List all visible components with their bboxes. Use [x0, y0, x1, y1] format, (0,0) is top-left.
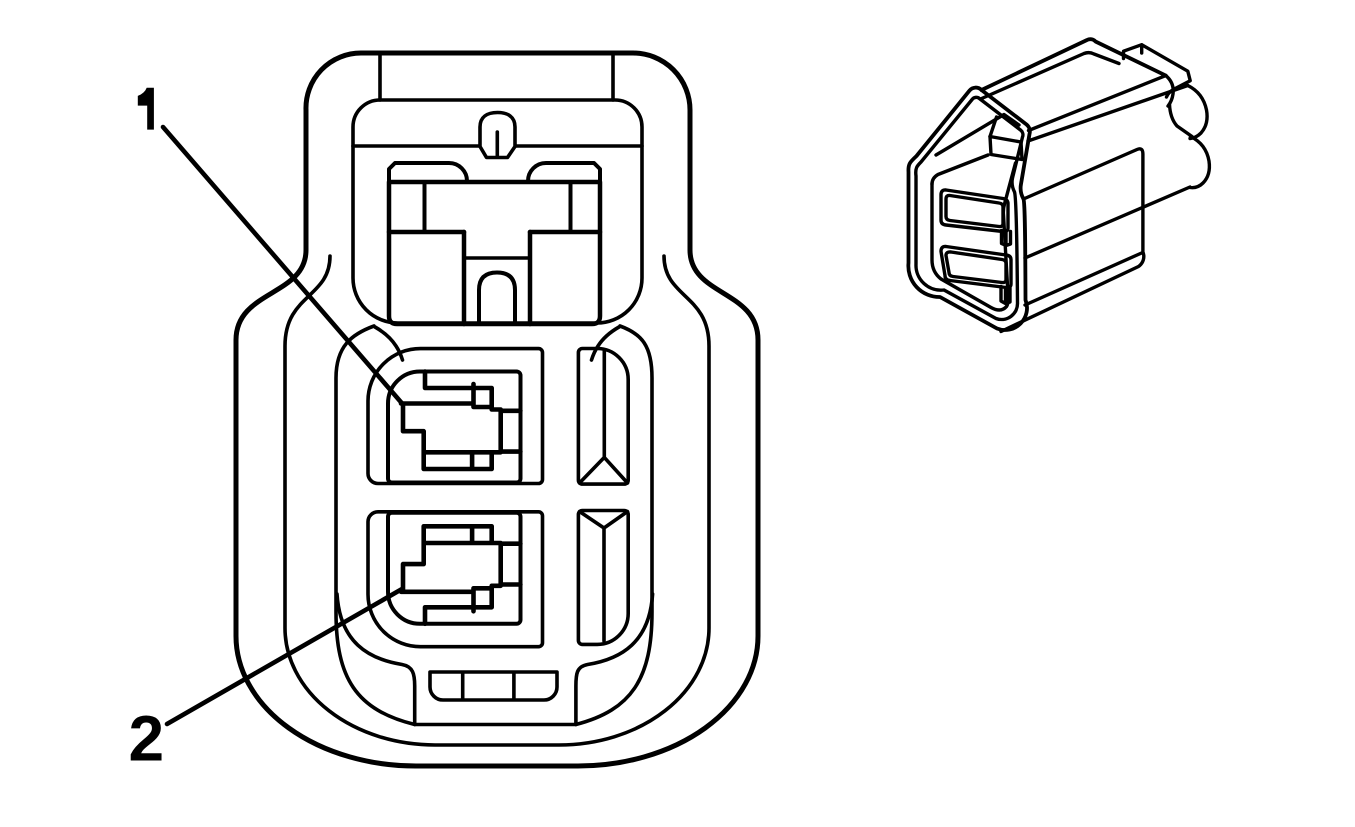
- svg-text:2: 2: [129, 703, 165, 775]
